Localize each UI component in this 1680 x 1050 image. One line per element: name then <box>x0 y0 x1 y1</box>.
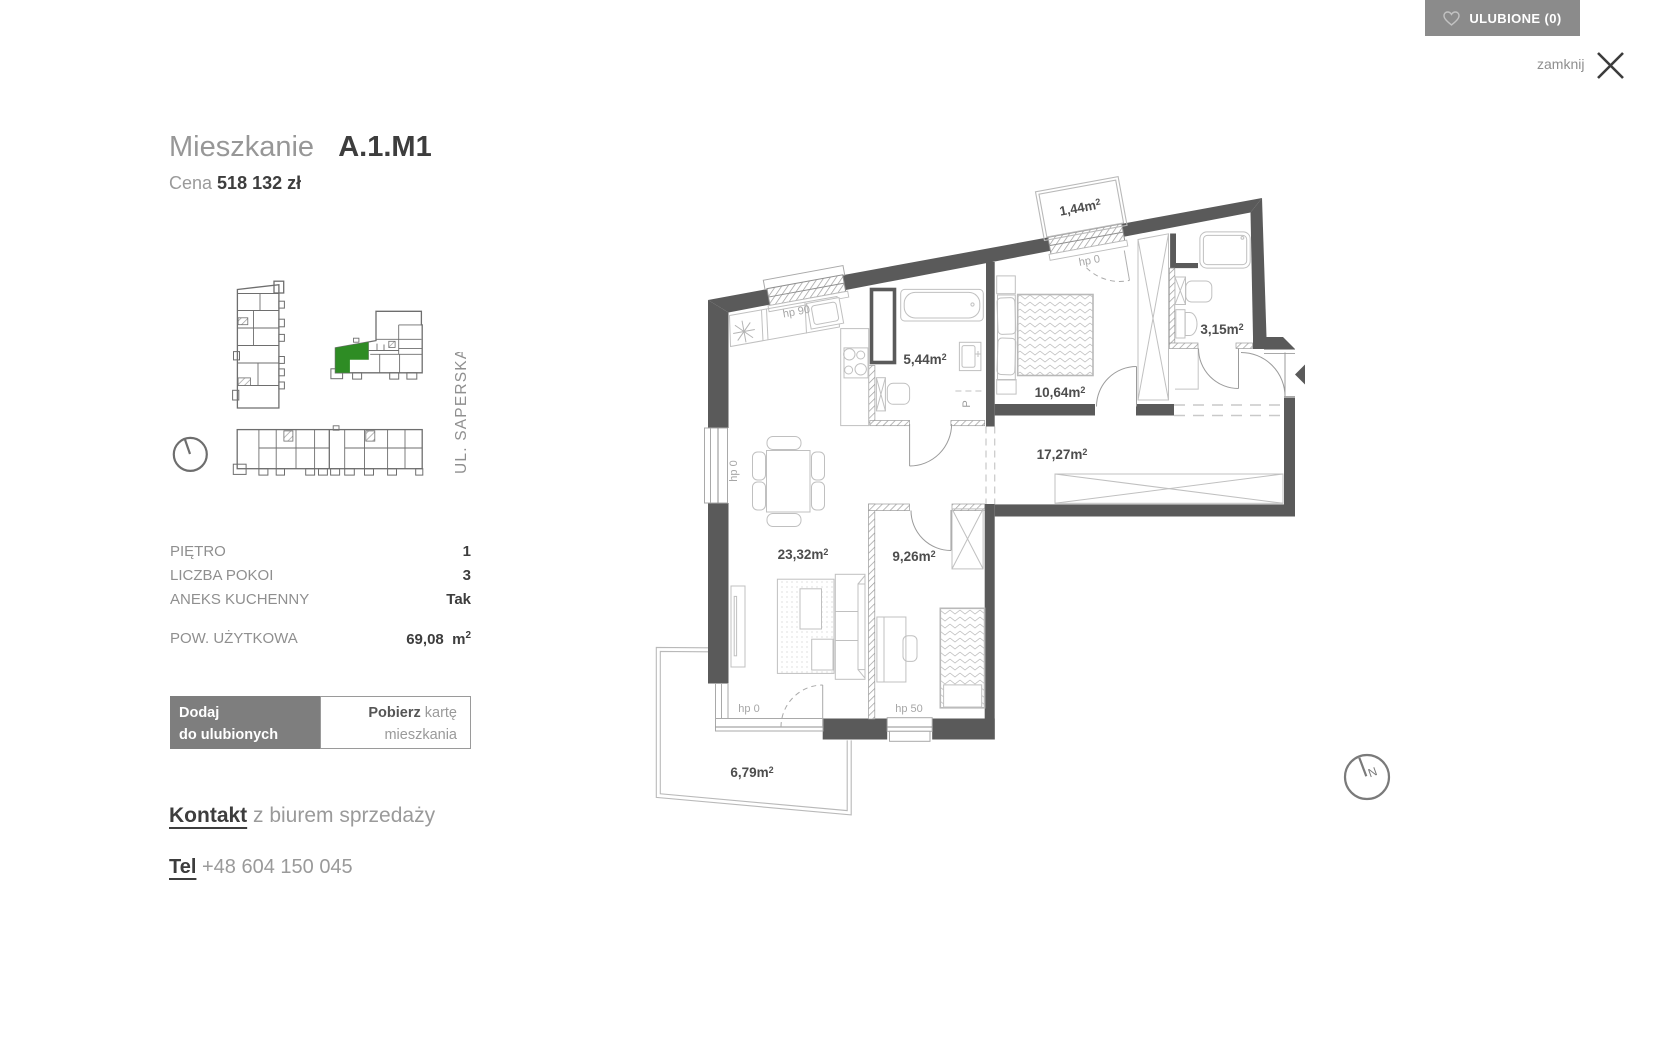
svg-text:17,27m2: 17,27m2 <box>1037 447 1088 462</box>
svg-text:5,44m2: 5,44m2 <box>903 352 946 367</box>
svg-text:1,44m2: 1,44m2 <box>1058 196 1102 218</box>
svg-text:hp 0: hp 0 <box>728 460 740 481</box>
svg-text:UL. SAPERSKA: UL. SAPERSKA <box>453 352 470 474</box>
svg-text:3,15m2: 3,15m2 <box>1200 322 1243 337</box>
svg-text:6,79m2: 6,79m2 <box>730 765 773 780</box>
svg-text:hp 0: hp 0 <box>738 703 759 715</box>
svg-text:10,64m2: 10,64m2 <box>1035 385 1086 400</box>
svg-text:N: N <box>1366 764 1379 780</box>
svg-text:9,26m2: 9,26m2 <box>892 549 935 564</box>
svg-text:hp 50: hp 50 <box>895 703 923 715</box>
svg-text:hp 0: hp 0 <box>1078 253 1101 269</box>
svg-text:P: P <box>961 400 973 407</box>
svg-text:23,32m2: 23,32m2 <box>778 547 829 562</box>
